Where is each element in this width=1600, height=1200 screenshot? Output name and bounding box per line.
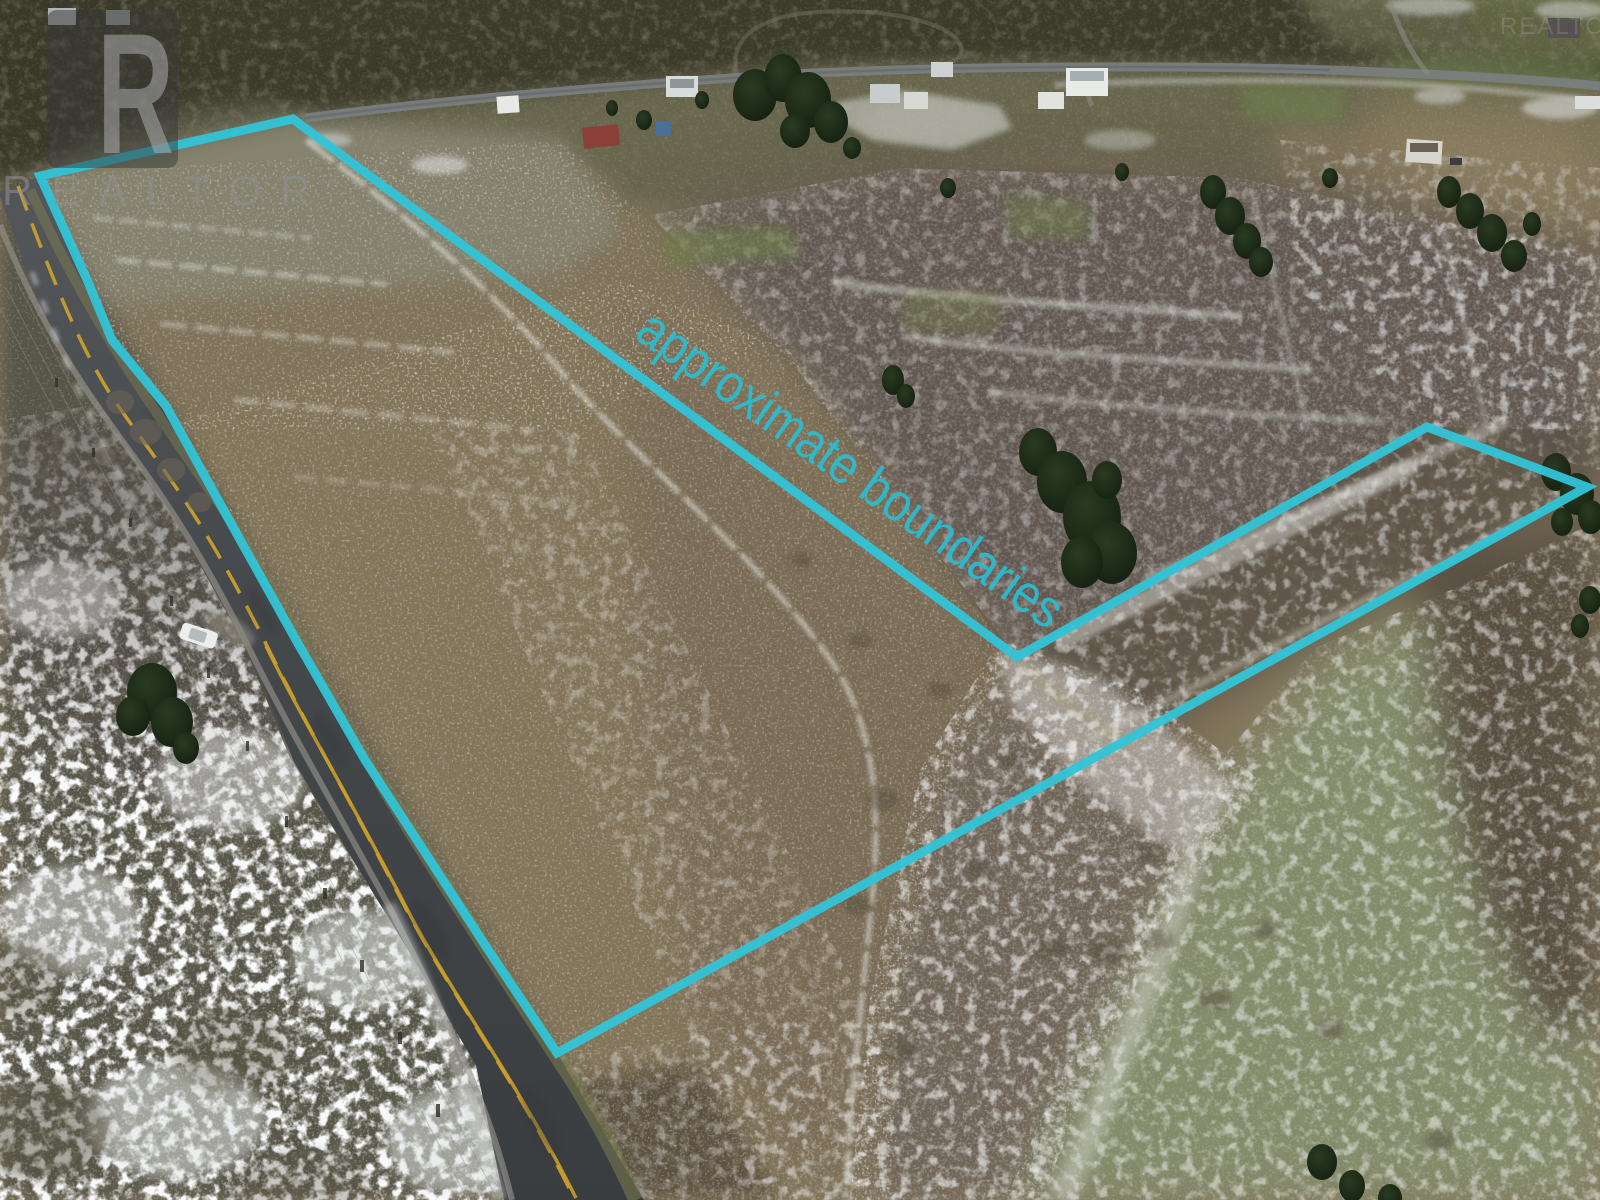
svg-text:REALTOR: REALTOR — [1500, 13, 1600, 40]
svg-text:R: R — [97, 0, 174, 190]
svg-text:REALTOR: REALTOR — [2, 167, 330, 214]
svg-text:®: ® — [328, 173, 339, 190]
